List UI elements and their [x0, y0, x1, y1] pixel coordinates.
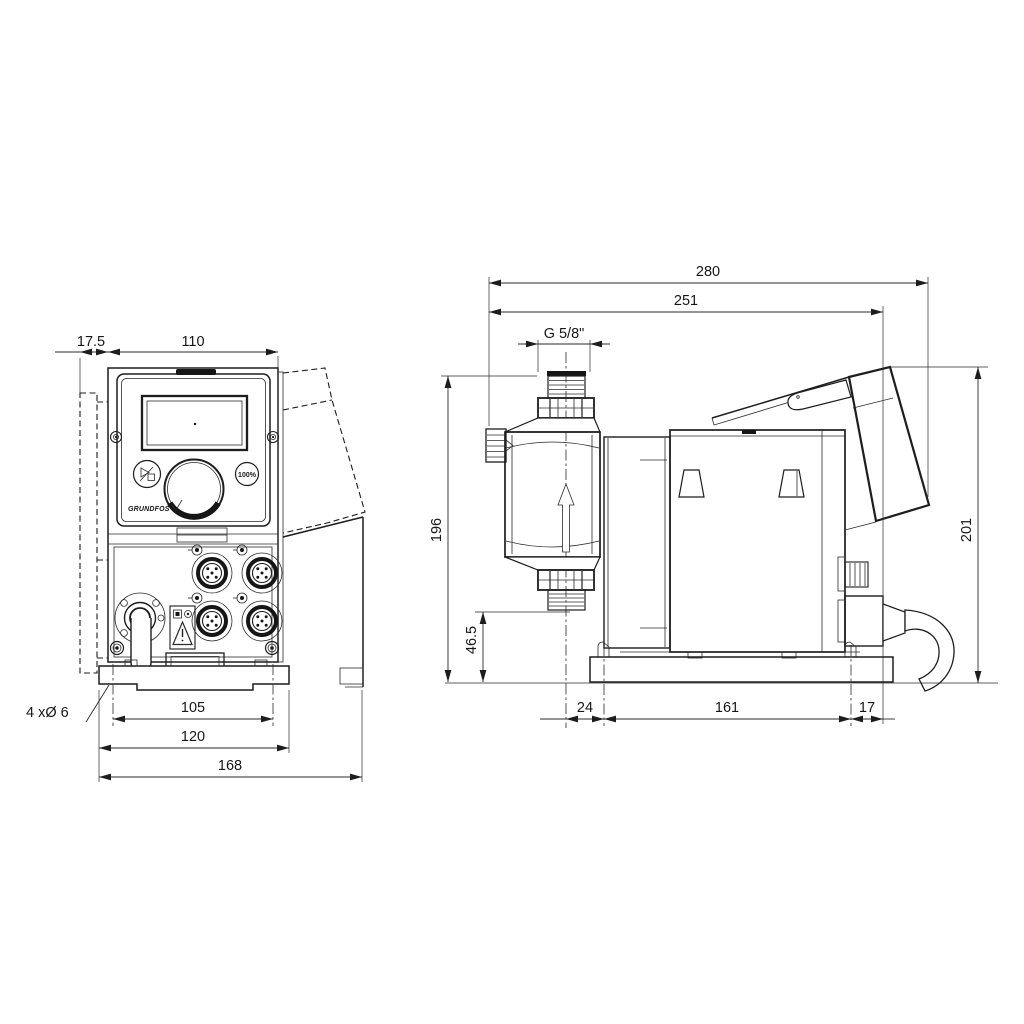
click-wheel[interactable] [165, 460, 224, 519]
panel-top-tab [176, 369, 216, 375]
front-view: 100% GRUNDFOS [26, 334, 365, 782]
control-cube-side [712, 367, 929, 530]
connector-id-icon [233, 545, 247, 555]
dim-holes-span: 105 [181, 700, 205, 716]
wheel-bump [788, 380, 851, 410]
dimensional-drawing: 100% GRUNDFOS [0, 0, 1024, 1024]
discharge-thread [548, 376, 585, 398]
connector-id-icon [188, 545, 202, 555]
cable-flange [115, 593, 165, 671]
drawing-sheet: 100% GRUNDFOS [0, 0, 1024, 1024]
screw-icon [268, 432, 279, 443]
brand-text: GRUNDFOS [128, 506, 170, 513]
plug-icon [174, 610, 192, 618]
m12-connector[interactable] [192, 601, 232, 641]
dim-height: 196 [429, 518, 445, 542]
control-panel: 100% GRUNDFOS [117, 369, 270, 526]
dim-inlet-thread: G 5/8" [544, 326, 585, 342]
dim-length-no-cable: 251 [674, 293, 698, 309]
warning-label [170, 606, 195, 649]
m12-connector[interactable] [242, 601, 282, 641]
connector-id-icon [188, 593, 202, 603]
max-capacity-button[interactable]: 100% [236, 463, 259, 486]
wheel-knurl [170, 503, 218, 517]
inlet-cap [547, 371, 586, 376]
dim-valve-height: 46.5 [464, 626, 480, 654]
mounting-hook [779, 470, 804, 497]
dosing-head-side [486, 352, 600, 728]
flow-direction-arrow [558, 484, 574, 552]
dim-total-width: 168 [218, 758, 242, 774]
dosing-head-hidden [283, 368, 365, 687]
mains-cable [131, 618, 151, 671]
signal-connectors [188, 545, 282, 641]
suction-thread [548, 590, 585, 610]
dim-base-front: 24 [577, 700, 593, 716]
connector-id-icon [233, 593, 247, 603]
dim-base-rear: 17 [859, 700, 875, 716]
rear-connections [838, 557, 954, 691]
max-capacity-label: 100% [238, 472, 257, 479]
screw-icon [111, 642, 124, 655]
pump-head [505, 432, 600, 557]
dim-total-length: 280 [696, 264, 720, 280]
deaeration-valve-knob[interactable] [486, 429, 513, 462]
motor-housing [604, 430, 845, 658]
display [142, 396, 247, 450]
start-stop-icon [140, 467, 155, 481]
side-view: 280 251 G 5/8" 196 46.5 201 [429, 264, 998, 728]
dim-holes-note: 4 xØ 6 [26, 705, 69, 721]
dim-offset: 17.5 [77, 334, 105, 350]
start-stop-button[interactable] [134, 461, 161, 488]
m12-connector[interactable] [192, 553, 232, 593]
screw-icon [111, 432, 122, 443]
m12-connector[interactable] [242, 553, 282, 593]
mounting-hook [679, 470, 704, 497]
dim-base-span: 161 [715, 700, 739, 716]
warning-triangle-icon [173, 622, 192, 645]
base-plate [99, 666, 289, 690]
power-cable [905, 610, 954, 691]
dim-width: 110 [181, 334, 204, 350]
rear-stud-thread [845, 562, 868, 587]
cable-gland [845, 596, 883, 646]
dim-plate-width: 120 [181, 729, 205, 745]
wall-plate-hidden [80, 393, 108, 673]
dim-panel-height: 201 [959, 518, 975, 542]
mid-band [108, 528, 278, 544]
display-dot [194, 423, 196, 425]
